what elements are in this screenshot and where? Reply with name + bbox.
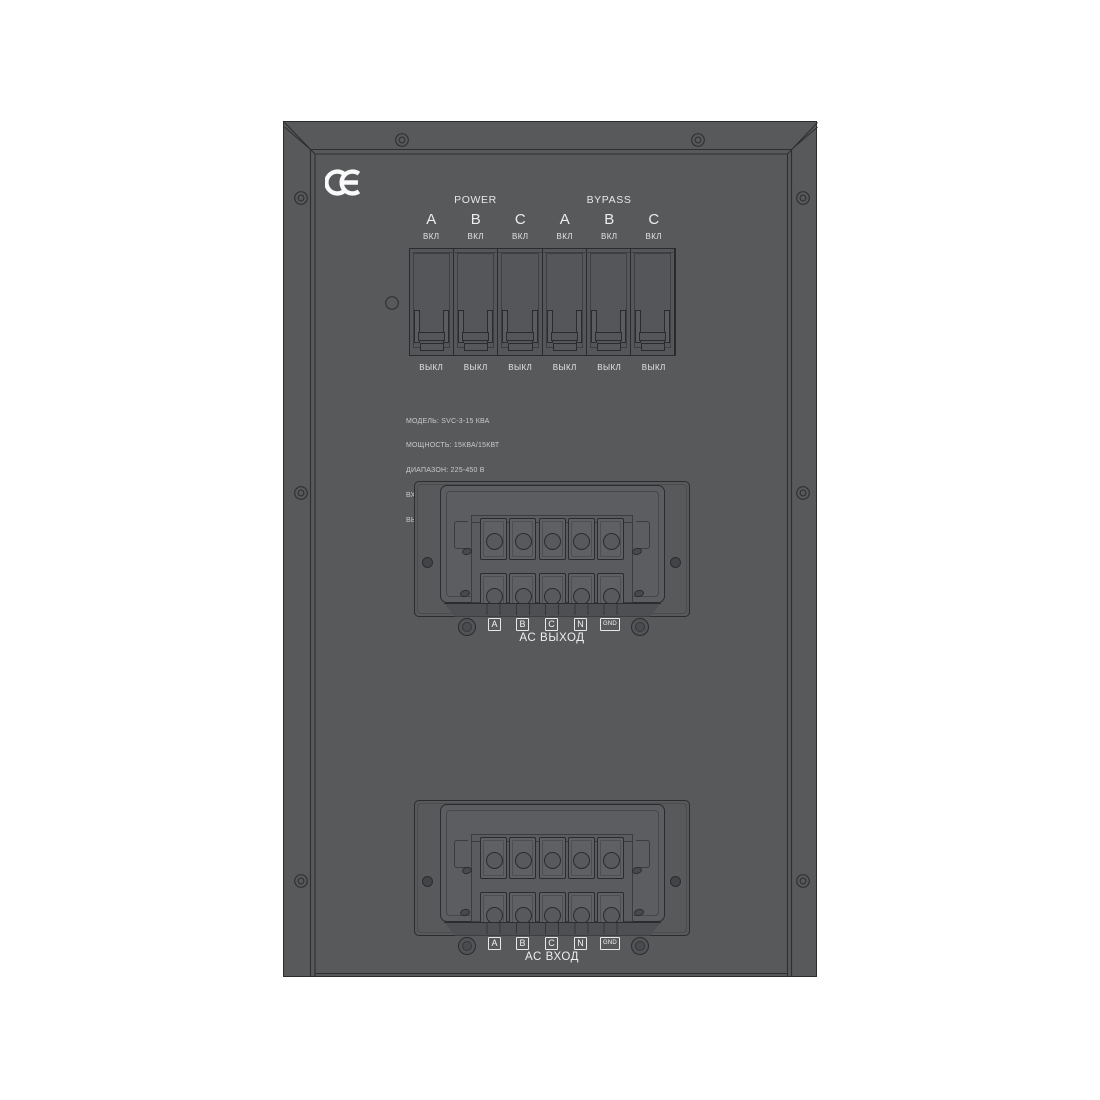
breaker-handle-tip bbox=[420, 343, 444, 351]
terminal-label-b: B bbox=[516, 618, 529, 631]
spec-line: МОЩНОСТЬ: 15КВА/15КВТ bbox=[406, 442, 517, 450]
breaker-handle-tip bbox=[464, 343, 488, 351]
plate-hole-icon bbox=[670, 876, 681, 887]
terminal-screw-icon bbox=[486, 533, 503, 550]
terminal-post bbox=[597, 837, 624, 879]
frame-screw-icon bbox=[396, 134, 409, 147]
plate-hole-icon bbox=[422, 557, 433, 568]
plate-hole-icon bbox=[670, 557, 681, 568]
terminal-post bbox=[539, 518, 566, 560]
terminal-screw-icon bbox=[603, 852, 620, 869]
housing-slot bbox=[636, 840, 650, 868]
collar-notches bbox=[480, 604, 626, 615]
housing-slot bbox=[636, 521, 650, 549]
terminal-post bbox=[597, 518, 624, 560]
collar-edge bbox=[444, 603, 661, 604]
breaker-handle bbox=[595, 332, 622, 341]
breaker-on-label: ВКЛ bbox=[587, 232, 632, 242]
housing-slot bbox=[454, 840, 468, 868]
terminal-caption: АС ВХОД bbox=[414, 951, 690, 963]
spec-line: ДИАПАЗОН: 225-450 В bbox=[406, 467, 517, 475]
cable-collar bbox=[444, 922, 661, 936]
terminal-screw-icon bbox=[544, 852, 561, 869]
product-image: POWER BYPASS A B C A B C ВКЛ ВКЛ ВКЛ ВКЛ… bbox=[0, 0, 1100, 1100]
terminal-screw-icon bbox=[573, 533, 590, 550]
terminal-label-n: N bbox=[574, 618, 587, 631]
breaker-off-row: ВЫКЛ ВЫКЛ ВЫКЛ ВЫКЛ ВЫКЛ ВЫКЛ bbox=[409, 363, 676, 373]
breaker-off-label: ВЫКЛ bbox=[498, 363, 543, 373]
terminal-post bbox=[509, 837, 536, 879]
breaker-on-label: ВКЛ bbox=[409, 232, 454, 242]
bypass-group-label: BYPASS bbox=[542, 194, 676, 207]
terminal-screw-icon bbox=[515, 852, 532, 869]
circuit-breaker bbox=[454, 249, 498, 355]
breaker-handle bbox=[506, 332, 533, 341]
housing-slot bbox=[454, 521, 468, 549]
breaker-off-label: ВЫКЛ bbox=[587, 363, 632, 373]
breaker-phase-label: C bbox=[498, 210, 543, 230]
breaker-phase-row: A B C A B C bbox=[409, 210, 676, 230]
frame-screw-icon bbox=[295, 875, 308, 888]
terminal-screw-icon bbox=[486, 852, 503, 869]
terminal-screw-icon bbox=[603, 533, 620, 550]
collar-notches bbox=[480, 923, 626, 934]
breaker-handle-tip bbox=[597, 343, 621, 351]
breaker-handle bbox=[418, 332, 445, 341]
breaker-phase-label: A bbox=[409, 210, 454, 230]
breaker-on-row: ВКЛ ВКЛ ВКЛ ВКЛ ВКЛ ВКЛ bbox=[409, 232, 676, 242]
terminal-label-c: C bbox=[545, 618, 558, 631]
circuit-breaker bbox=[410, 249, 454, 355]
terminal-post bbox=[480, 518, 507, 560]
breaker-on-label: ВКЛ bbox=[498, 232, 543, 242]
frame-screw-icon bbox=[797, 192, 810, 205]
spec-line: МОДЕЛЬ: SVC-3-15 КВА bbox=[406, 418, 517, 426]
terminal-screw-icon bbox=[515, 533, 532, 550]
terminal-post bbox=[509, 518, 536, 560]
terminal-block: A B C N GND АС ВЫХОД bbox=[414, 481, 690, 647]
terminal-screw-icon bbox=[573, 852, 590, 869]
breaker-on-label: ВКЛ bbox=[632, 232, 677, 242]
breaker-on-label: ВКЛ bbox=[543, 232, 588, 242]
breaker-phase-label: A bbox=[543, 210, 588, 230]
terminal-label-c: C bbox=[545, 937, 558, 950]
terminal-block: A B C N GND АС ВХОД bbox=[414, 800, 690, 966]
frame-screw-icon bbox=[692, 134, 705, 147]
ups-rear-panel: POWER BYPASS A B C A B C ВКЛ ВКЛ ВКЛ ВКЛ… bbox=[283, 121, 817, 977]
circuit-breaker bbox=[587, 249, 631, 355]
terminal-screw-icon bbox=[544, 533, 561, 550]
terminal-label-n: N bbox=[574, 937, 587, 950]
ce-mark-icon bbox=[325, 166, 365, 199]
frame-screw-icon bbox=[295, 487, 308, 500]
collar-edge bbox=[444, 922, 661, 923]
circuit-breaker bbox=[498, 249, 542, 355]
terminal-post bbox=[539, 837, 566, 879]
breaker-bank bbox=[409, 248, 676, 356]
breaker-on-label: ВКЛ bbox=[454, 232, 499, 242]
breaker-off-label: ВЫКЛ bbox=[409, 363, 454, 373]
terminal-caption: АС ВЫХОД bbox=[414, 632, 690, 644]
breaker-handle bbox=[639, 332, 666, 341]
breaker-phase-label: B bbox=[587, 210, 632, 230]
breaker-off-label: ВЫКЛ bbox=[632, 363, 677, 373]
circuit-breaker bbox=[631, 249, 675, 355]
circuit-breaker bbox=[543, 249, 587, 355]
breaker-phase-label: B bbox=[454, 210, 499, 230]
mounting-hole-icon bbox=[386, 297, 399, 310]
breaker-off-label: ВЫКЛ bbox=[454, 363, 499, 373]
terminal-post bbox=[568, 518, 595, 560]
terminal-post bbox=[568, 837, 595, 879]
breaker-handle-tip bbox=[553, 343, 577, 351]
terminal-post bbox=[480, 837, 507, 879]
breaker-phase-label: C bbox=[632, 210, 677, 230]
breaker-handle bbox=[551, 332, 578, 341]
power-group-label: POWER bbox=[409, 194, 542, 207]
terminal-label-gnd: GND bbox=[600, 937, 620, 950]
terminal-label-gnd: GND bbox=[600, 618, 620, 631]
frame-screw-icon bbox=[797, 875, 810, 888]
breaker-handle bbox=[462, 332, 489, 341]
cable-collar bbox=[444, 603, 661, 617]
frame-screw-icon bbox=[295, 192, 308, 205]
breaker-handle-tip bbox=[508, 343, 532, 351]
terminal-label-b: B bbox=[516, 937, 529, 950]
breaker-off-label: ВЫКЛ bbox=[543, 363, 588, 373]
terminal-label-a: A bbox=[488, 937, 501, 950]
terminal-label-a: A bbox=[488, 618, 501, 631]
frame-screw-icon bbox=[797, 487, 810, 500]
plate-hole-icon bbox=[422, 876, 433, 887]
breaker-handle-tip bbox=[641, 343, 665, 351]
